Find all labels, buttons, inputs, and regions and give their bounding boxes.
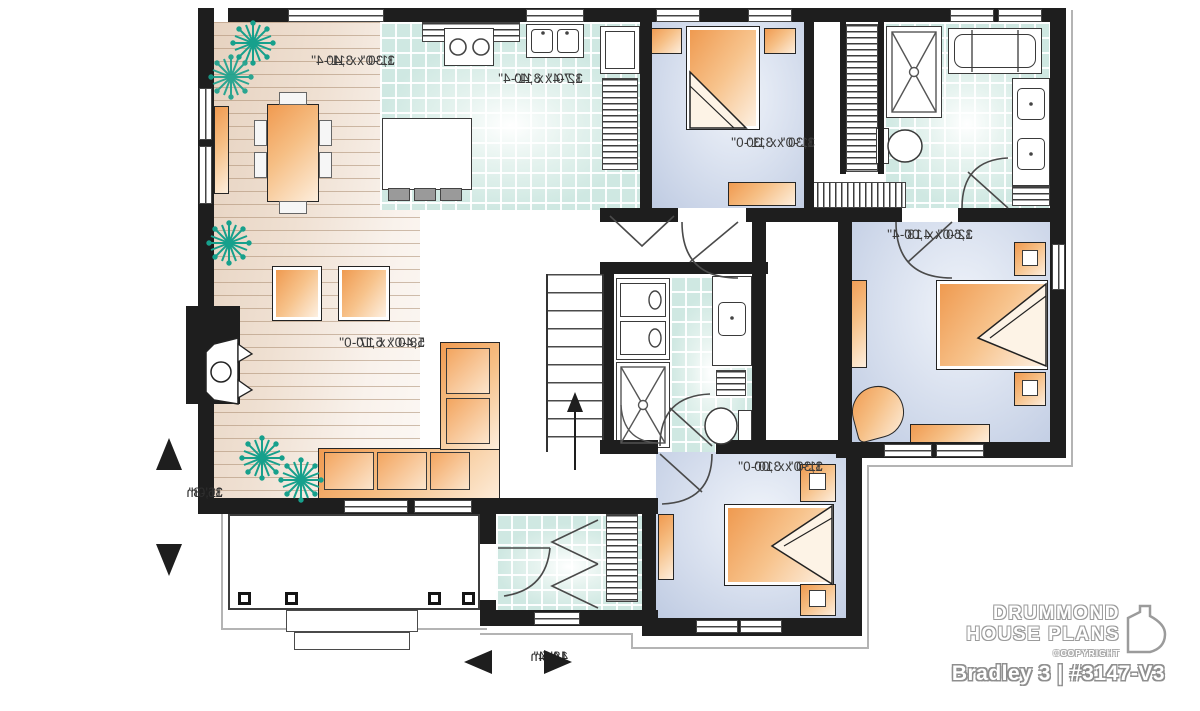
plant-icon: [240, 436, 283, 479]
room-dim-metric: 3,70 x 3,40: [514, 70, 583, 88]
dimension-arrow-up: [156, 438, 182, 470]
corner-shower-glass: [621, 367, 665, 443]
branding-block: DRUMMOND HOUSE PLANS ©COPYRIGHT Bradley …: [940, 604, 1185, 704]
plant-icon: [207, 221, 250, 264]
plan-name: Bradley 3 | #3147-V3: [940, 662, 1165, 686]
faucet-dots: [541, 31, 1033, 320]
plant-icon: [209, 55, 252, 98]
washer-dryer-doors: [649, 291, 661, 347]
room-dim-metric: 3,30 x 3,30: [746, 134, 815, 152]
roofline: [480, 10, 1072, 648]
toilet: [888, 130, 922, 162]
depth-metric: 11,0m: [186, 484, 223, 502]
dimension-arrow-right: [544, 650, 572, 674]
main-shower-glass: [892, 32, 936, 112]
room-dim-metric: 3,30 x 3,40: [326, 52, 395, 70]
wood-stove: [206, 338, 252, 404]
brand-name-line2: HOUSE PLANS: [940, 625, 1120, 646]
room-dim-metric: 3,30 x 3,00: [754, 458, 823, 476]
cooktop-burners: [450, 39, 489, 55]
plant-icon: [279, 458, 322, 501]
room-dim-metric: 3,60 x 4,00: [904, 226, 973, 244]
plant-icon: [231, 21, 274, 64]
room-dim-metric: 5,40 x 5,10: [356, 334, 425, 352]
copyright-text: ©COPYRIGHT: [940, 648, 1120, 658]
stairs-up-arrow: [567, 392, 583, 470]
dimension-arrow-down: [156, 544, 182, 576]
brand-name-line1: DRUMMOND: [940, 604, 1120, 625]
toilet: [705, 408, 737, 444]
dimension-arrow-left: [464, 650, 492, 674]
floor-plan: 11'-0" x 11'-4" 3,30 x 3,40 12'-4" x 11'…: [0, 0, 1200, 711]
